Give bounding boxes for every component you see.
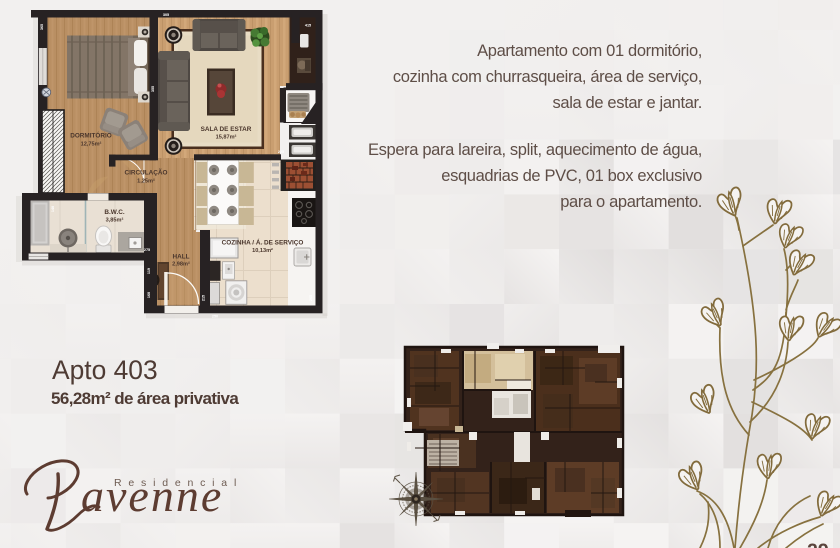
svg-text:275: 275 (144, 248, 150, 252)
svg-text:215: 215 (202, 295, 206, 301)
svg-text:265: 265 (309, 295, 313, 301)
svg-text:SALA DE ESTAR: SALA DE ESTAR (201, 126, 252, 133)
svg-text:B.W.C.: B.W.C. (104, 209, 124, 216)
svg-text:CIRCULAÇÃO: CIRCULAÇÃO (125, 168, 168, 177)
svg-text:140: 140 (51, 206, 55, 212)
svg-text:119: 119 (147, 268, 151, 274)
svg-text:10,13m²: 10,13m² (252, 247, 273, 254)
svg-text:15,87m²: 15,87m² (216, 134, 237, 141)
svg-text:1,25m²: 1,25m² (137, 178, 155, 185)
svg-text:3,85m²: 3,85m² (106, 217, 124, 224)
svg-text:HALL: HALL (172, 254, 189, 261)
svg-text:2,98m²: 2,98m² (172, 261, 190, 268)
svg-text:12,75m²: 12,75m² (81, 141, 102, 148)
svg-text:365: 365 (40, 24, 44, 30)
svg-text:160: 160 (147, 292, 151, 298)
svg-text:250: 250 (212, 315, 218, 319)
svg-text:305: 305 (163, 13, 169, 17)
svg-text:DORMITÓRIO: DORMITÓRIO (70, 131, 112, 140)
svg-text:355: 355 (151, 86, 155, 92)
svg-text:415: 415 (305, 24, 311, 28)
svg-text:COZINHA / Á. DE SERVIÇO: COZINHA / Á. DE SERVIÇO (222, 238, 304, 247)
svg-text:avenne: avenne (81, 470, 223, 521)
